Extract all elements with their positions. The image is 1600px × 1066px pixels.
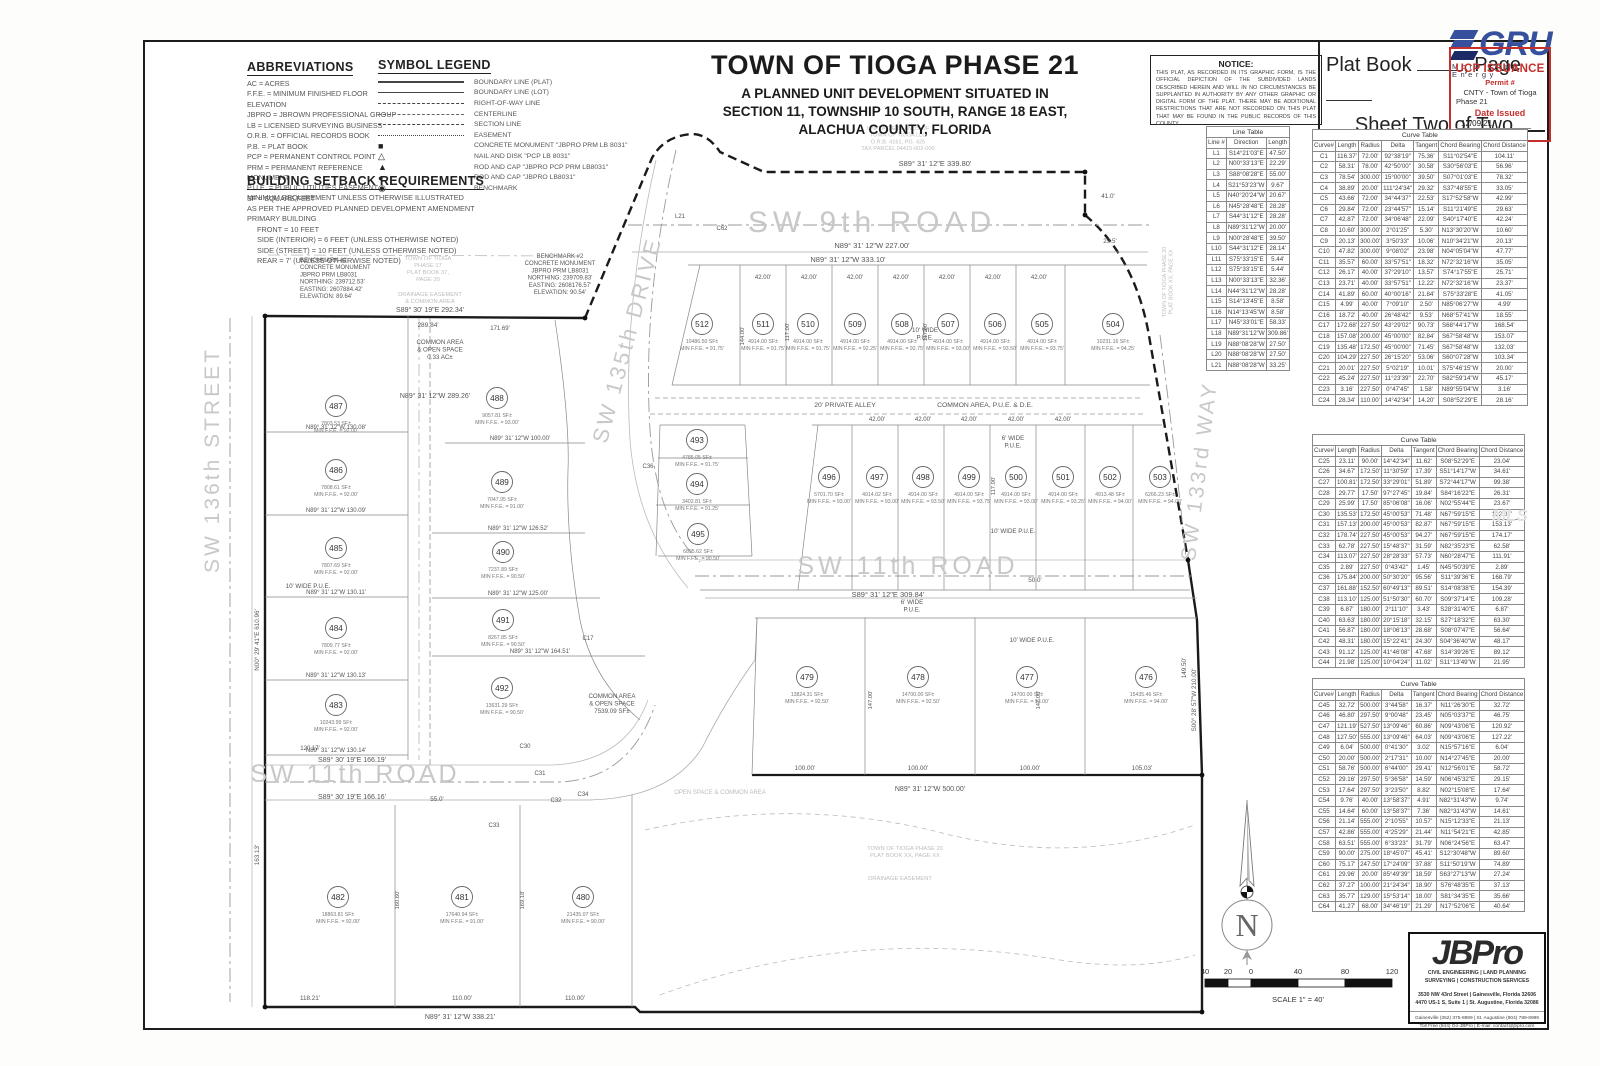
- curve-table-3: Curve TableCurve#LengthRadiusDeltaTangen…: [1312, 678, 1525, 912]
- table-cell: 555.00': [1359, 827, 1382, 838]
- table-cell: 33°29'01": [1382, 477, 1412, 488]
- table-cell: 18°06'13": [1382, 626, 1412, 637]
- table-cell: 16.37': [1411, 700, 1436, 711]
- table-cell: C16: [1313, 310, 1336, 321]
- lot-min-ffe: MIN F.F.E. = 93.00': [855, 499, 899, 505]
- legend-symbol-triangle-open: △: [378, 151, 468, 162]
- map-annotation: S89° 31' 12"E 339.80': [899, 159, 972, 168]
- table-cell: C4: [1313, 183, 1336, 194]
- table-row: C27100.81'172.50'33°29'01"51.89'S72°44'1…: [1313, 477, 1525, 488]
- lot-number: 482: [331, 893, 345, 902]
- table-cell: C33: [1313, 541, 1336, 552]
- lot-area: 21435.07 SF±: [567, 912, 600, 918]
- table-cell: S82°59'14"W: [1439, 374, 1482, 385]
- lot-number: 478: [911, 673, 925, 682]
- table-cell: 45°00'53": [1382, 509, 1412, 520]
- table-cell: 14.64': [1335, 806, 1358, 817]
- table-row: C2428.34'110.00'14°42'34"14.20'S08°52'29…: [1313, 395, 1528, 406]
- table-cell: 37.88': [1411, 859, 1436, 870]
- legend-item: BOUNDARY LINE (LOT): [378, 88, 628, 99]
- table-cell: 15.14': [1414, 204, 1439, 215]
- legend-label: ROD AND CAP "JBPRO PCP PRM LB8031": [474, 164, 608, 171]
- table-cell: S14°21'03"E: [1226, 148, 1266, 159]
- table-cell: 51.89': [1411, 477, 1436, 488]
- table-row: L19N88°08'28"W27.50': [1207, 339, 1290, 350]
- table-cell: C20: [1313, 352, 1336, 363]
- table-cell: C7: [1313, 215, 1336, 226]
- map-annotation: 100.00': [908, 765, 928, 772]
- divider-vertical: [1318, 40, 1320, 130]
- map-annotation: 42.00': [801, 275, 817, 281]
- table-cell: 2.89': [1335, 562, 1358, 573]
- map-annotation: C32: [550, 798, 562, 804]
- lot-area: 4913.48 SF±: [1095, 492, 1125, 498]
- table-header: Length: [1335, 141, 1358, 152]
- table-cell: 180.00': [1359, 636, 1382, 647]
- lot-485: 4857807.69 SF±MIN F.F.E. = 92.00': [314, 538, 358, 577]
- table-cell: 135.48': [1335, 342, 1358, 353]
- legend-item: ▲ROD AND CAP "JBPRO PCP PRM LB8031": [378, 162, 628, 173]
- map-annotation: OPEN SPACE & COMMON AREA: [674, 790, 766, 796]
- table-cell: 97°27'45": [1382, 488, 1412, 499]
- table-cell: S08°52'29"E: [1436, 456, 1479, 467]
- map-annotation: N89° 31' 12"W 164.51': [510, 649, 570, 655]
- table-cell: L8: [1207, 222, 1227, 233]
- table-cell: 40.00': [1359, 795, 1382, 806]
- table-cell: 0°41'30": [1382, 742, 1412, 753]
- lot-area: 4914.00 SF±: [980, 339, 1010, 345]
- table-cell: 48.31': [1335, 636, 1358, 647]
- table-cell: 72.00': [1359, 204, 1382, 215]
- lot-490: 4907237.89 SF±MIN F.F.E. = 90.50': [481, 542, 525, 581]
- lot-number: 485: [329, 544, 343, 553]
- lot-area: 15435.46 SF±: [1130, 692, 1163, 698]
- lot-486: 4867808.61 SF±MIN F.F.E. = 92.00': [314, 460, 358, 499]
- monument-marker: [1200, 773, 1205, 778]
- table-cell: 71.45': [1414, 342, 1439, 353]
- table-cell: C59: [1313, 848, 1336, 859]
- table-row: L2N00°33'13"E22.29': [1207, 159, 1290, 170]
- table-cell: 8.58': [1266, 296, 1289, 307]
- lot-min-ffe: MIN F.F.E. = 91.00': [480, 504, 524, 510]
- lot-number: 484: [329, 624, 343, 633]
- plat-sheet: SW 9th ROADN89° 31' 12"W 227.00'S89° 31'…: [0, 0, 1600, 1066]
- table-cell: S67°58'48"W: [1439, 342, 1482, 353]
- legend-symbol-line-section: [378, 124, 468, 125]
- table-cell: N04°05'04"W: [1439, 246, 1482, 257]
- map-annotation: 42.00': [1055, 417, 1071, 423]
- table-cell: 17°24'09": [1382, 859, 1412, 870]
- table-row: C2523.11'90.00'14°42'34"11.62'S08°52'29"…: [1313, 456, 1525, 467]
- table-cell: 63.51': [1335, 838, 1358, 849]
- table-cell: 12.22': [1414, 278, 1439, 289]
- map-annotation: 10' WIDE P.U.E.: [1010, 637, 1055, 644]
- table-cell: S37°48'55"E: [1439, 183, 1482, 194]
- legend-symbol-triangle-filled: ▲: [378, 162, 468, 172]
- lot-487: 4877803.53 SF±MIN F.F.E. = 92.00': [314, 396, 358, 435]
- table-cell: 72.00': [1359, 193, 1382, 204]
- table-row: L20N88°08'28"W27.50': [1207, 349, 1290, 360]
- table-cell: 5.44': [1266, 254, 1289, 265]
- plat-book-label: Plat Book: [1326, 54, 1412, 76]
- table-cell: 100.81': [1335, 477, 1358, 488]
- table-cell: L7: [1207, 212, 1227, 223]
- table-cell: S11°50'19"W: [1436, 859, 1479, 870]
- table-row: L5N40°20'24"W20.67': [1207, 190, 1290, 201]
- map-annotation: N89° 31' 12"W 500.00': [895, 785, 965, 793]
- table-cell: N06°24'56"E: [1436, 838, 1479, 849]
- lot-number: 498: [916, 473, 930, 482]
- table-cell: 127.22': [1479, 732, 1525, 743]
- table-cell: 555.00': [1359, 732, 1382, 743]
- stamp-title: UCP ISSUANCE: [1451, 63, 1549, 75]
- table-row: C1441.89'60.00'40°00'16"21.84'S75°33'28"…: [1313, 289, 1528, 300]
- table-cell: 168.79': [1479, 573, 1525, 584]
- lot-number: 499: [962, 473, 976, 482]
- lot-min-ffe: MIN F.F.E. = 91.75': [675, 462, 719, 468]
- legend-label: EASEMENT: [474, 132, 511, 139]
- table-cell: 10.01': [1414, 363, 1439, 374]
- table-cell: 1.58': [1414, 384, 1439, 395]
- table-cell: 45°00'53": [1382, 520, 1412, 531]
- table-cell: S04°36'40"W: [1436, 636, 1479, 647]
- table-cell: C9: [1313, 236, 1336, 247]
- table-cell: N00°33'13"E: [1226, 159, 1266, 170]
- table-cell: 172.50': [1359, 477, 1382, 488]
- table-cell: 129.00': [1359, 891, 1382, 902]
- table-cell: 38.89': [1335, 183, 1358, 194]
- table-cell: N67°59'15"E: [1436, 509, 1479, 520]
- lot-number: 490: [496, 548, 510, 557]
- lot-481: 48117640.94 SF±MIN F.F.E. = 91.00': [440, 887, 484, 926]
- table-cell: 25.99': [1335, 498, 1358, 509]
- table-cell: 157.13': [1335, 520, 1358, 531]
- table-cell: 10.00': [1411, 753, 1436, 764]
- jbpro-address-2: 4470 US-1 S, Suite 1 | St. Augustine, Fl…: [1410, 999, 1544, 1007]
- lot-497: 4974914.02 SF±MIN F.F.E. = 93.00': [855, 467, 899, 506]
- table-cell: C61: [1313, 870, 1336, 881]
- line-table: Line TableLine #DirectionLengthL1S14°21'…: [1206, 126, 1290, 371]
- table-row: C4248.31'180.00'15°22'41"24.30'S04°36'40…: [1313, 636, 1525, 647]
- table-cell: 500.00': [1359, 700, 1382, 711]
- jbpro-logo: JBPro: [1410, 936, 1544, 970]
- table-cell: C53: [1313, 785, 1336, 796]
- table-cell: C18: [1313, 331, 1336, 342]
- table-cell: 227.50': [1359, 363, 1382, 374]
- table-cell: 11.02': [1411, 657, 1436, 668]
- table-cell: 35.77': [1335, 891, 1358, 902]
- table-cell: 20.00': [1359, 183, 1382, 194]
- lot-number: 489: [495, 478, 509, 487]
- legend-label: CONCRETE MONUMENT "JBPRO PRM LB 8031": [474, 142, 628, 149]
- lot-489: 4897047.95 SF±MIN F.F.E. = 91.00': [480, 472, 524, 511]
- table-cell: N00°33'13"E: [1226, 275, 1266, 286]
- table-cell: S30°56'03"E: [1439, 162, 1482, 173]
- table-cell: 154.39': [1479, 583, 1525, 594]
- abbreviation-item: O.R.B. = OFFICIAL RECORDS BOOK: [247, 131, 397, 141]
- map-annotation: 105.03': [1132, 765, 1152, 772]
- lot-min-ffe: MIN F.F.E. = 92.50': [896, 699, 940, 705]
- table-cell: C41: [1313, 626, 1336, 637]
- lot-number: 493: [690, 436, 704, 445]
- table-cell: 6°33'23": [1382, 838, 1412, 849]
- legend-item: CENTERLINE: [378, 109, 628, 120]
- table-cell: C43: [1313, 647, 1336, 658]
- table-cell: 100.00': [1359, 880, 1382, 891]
- map-annotation: 117.00': [991, 477, 997, 495]
- lot-number: 501: [1056, 473, 1070, 482]
- table-row: C6237.27'100.00'21°24'34"18.90'S76°48'35…: [1313, 880, 1525, 891]
- lot-479: 47913824.31 SF±MIN F.F.E. = 92.50': [785, 667, 829, 706]
- map-annotation: 10' WIDE P.U.E.: [286, 583, 331, 590]
- table-cell: L14: [1207, 286, 1227, 297]
- lot-min-ffe: MIN F.F.E. = 92.00': [314, 727, 358, 733]
- table-cell: N67°59'15"E: [1436, 530, 1479, 541]
- table-cell: 60.00': [1359, 806, 1382, 817]
- table-row: C2634.67'172.50'11°30'59"17.39'S51°14'17…: [1313, 467, 1525, 478]
- table-cell: 21.98': [1335, 657, 1358, 668]
- monument-marker: [1200, 1010, 1205, 1015]
- table-cell: S40°17'40"E: [1439, 215, 1482, 226]
- table-cell: C13: [1313, 278, 1336, 289]
- table-cell: 111.91': [1479, 551, 1525, 562]
- table-cell: 60°49'13": [1382, 583, 1412, 594]
- setback-title: BUILDING SETBACK REQUIREMENTS: [247, 174, 484, 190]
- table-cell: 6.87': [1335, 604, 1358, 615]
- table-cell: C27: [1313, 477, 1336, 488]
- table-cell: 31.79': [1411, 838, 1436, 849]
- table-row: L4S21°53'23"W9.67': [1207, 180, 1290, 191]
- lot-min-ffe: MIN F.F.E. = 90.50': [480, 710, 524, 716]
- lot-506: 5064914.00 SF±MIN F.F.E. = 93.50': [973, 314, 1017, 353]
- table-cell: 10.60': [1335, 225, 1358, 236]
- table-cell: S14°08'38"E: [1436, 583, 1479, 594]
- map-annotation: S00° 28' 57"W 210.00': [1190, 669, 1198, 732]
- table-row: C2245.24'227.50'11°23'39"22.70'S82°59'14…: [1313, 374, 1528, 385]
- table-cell: 34.61': [1479, 467, 1525, 478]
- table-row: L9N00°28'48"E39.50': [1207, 233, 1290, 244]
- scale-label: 40: [1201, 967, 1209, 976]
- table-row: C4156.87'180.00'18°06'13"28.68'S08°07'47…: [1313, 626, 1525, 637]
- table-header: Chord Distance: [1482, 141, 1528, 152]
- table-cell: 23.37': [1482, 278, 1528, 289]
- table-cell: 40.00': [1359, 310, 1382, 321]
- table-cell: 21°24'34": [1382, 880, 1412, 891]
- map-annotation: N89° 31' 12"W 333.10': [810, 255, 886, 264]
- map-annotation: C34: [577, 792, 589, 798]
- table-cell: 120.92': [1479, 721, 1525, 732]
- sheet-subtitle-1: A PLANNED UNIT DEVELOPMENT SITUATED IN: [655, 85, 1135, 103]
- table-cell: 29.84': [1335, 204, 1358, 215]
- table-cell: 25.71': [1482, 268, 1528, 279]
- table-cell: 18.55': [1482, 310, 1528, 321]
- table-cell: 48.17': [1479, 636, 1525, 647]
- map-annotation: 6' WIDEP.U.E.: [901, 599, 924, 613]
- table-cell: L16: [1207, 307, 1227, 318]
- map-annotation: 120.17': [300, 746, 320, 752]
- map-annotation: N00° 29' 41"E 610.96': [253, 609, 261, 670]
- table-cell: 6°44'00": [1382, 764, 1412, 775]
- table-row: C396.87'180.00'2°11'10"3.43'S28°31'40"E6…: [1313, 604, 1525, 615]
- table-cell: C6: [1313, 204, 1336, 215]
- table-cell: 174.17': [1479, 530, 1525, 541]
- table-cell: S68°44'17"W: [1439, 321, 1482, 332]
- table-cell: 17.39': [1411, 467, 1436, 478]
- table-cell: L18: [1207, 328, 1227, 339]
- abbreviation-item: LB = LICENSED SURVEYING BUSINESS: [247, 121, 397, 131]
- map-annotation: 42.00': [1008, 417, 1024, 423]
- lot-number: 479: [800, 673, 814, 682]
- map-annotation: 29.5': [1103, 238, 1116, 245]
- table-cell: 20.00': [1335, 753, 1358, 764]
- table-cell: 4.99': [1482, 299, 1528, 310]
- lot-area: 4914.00 SF±: [748, 339, 778, 345]
- lot-min-ffe: MIN F.F.E. = 93.50': [901, 499, 945, 505]
- table-cell: 22.53': [1414, 193, 1439, 204]
- table-row: L17N45°33'01"E58.33': [1207, 318, 1290, 329]
- lot-area: 6266.23 SF±: [1145, 492, 1175, 498]
- abbreviations-title: ABBREVIATIONS: [247, 60, 353, 76]
- lot-476: 47615435.46 SF±MIN F.F.E. = 94.00': [1124, 667, 1168, 706]
- jbpro-phone-1: Gainesville (352) 375-8999 | St. Augusti…: [1410, 1015, 1544, 1023]
- table-cell: 37°29'10": [1382, 268, 1414, 279]
- map-annotation: COMMON AREA& OPEN SPACE7539.09 SF±: [588, 693, 636, 715]
- table-row: L8N89°31'12"W20.00': [1207, 222, 1290, 233]
- legend-symbol-square: ■: [378, 141, 468, 151]
- table-cell: 26.17': [1335, 268, 1358, 279]
- table-cell: 8.82': [1411, 785, 1436, 796]
- lot-number: 483: [329, 701, 343, 710]
- table-header: Chord Bearing: [1436, 690, 1479, 701]
- table-cell: 275.00': [1359, 848, 1382, 859]
- map-annotation: N89° 31' 12"W 227.00': [834, 241, 910, 250]
- table-cell: 41.27': [1335, 901, 1358, 912]
- lot-min-ffe: MIN F.F.E. = 94.00': [1124, 699, 1168, 705]
- scale-bar: 402004080120SCALE 1" = 40': [1201, 967, 1398, 1004]
- table-cell: 42.86': [1335, 827, 1358, 838]
- table-cell: 26.31': [1479, 488, 1525, 499]
- lot-area: 7809.77 SF±: [321, 643, 351, 649]
- table-cell: 78.32': [1482, 172, 1528, 183]
- north-letter: N: [1235, 907, 1258, 943]
- table-cell: 37.13': [1479, 880, 1525, 891]
- table-cell: 172.50': [1359, 342, 1382, 353]
- lot-min-ffe: MIN F.F.E. = 93.00': [807, 499, 851, 505]
- legend-label: CENTERLINE: [474, 111, 517, 118]
- table-cell: C64: [1313, 901, 1336, 912]
- table-cell: S11°13'49"W: [1436, 657, 1479, 668]
- lot-number: 495: [691, 530, 705, 539]
- map-annotation: N89° 31' 12"W 126.52': [488, 526, 548, 532]
- table-cell: 300.00': [1359, 246, 1382, 257]
- table-row: C34113.07'227.50'28°28'33"57.73'N60°28'4…: [1313, 551, 1525, 562]
- table-header: Tangent: [1414, 141, 1439, 152]
- table-row: C47121.19'527.50'13°09'46"60.86'N09°43'0…: [1313, 721, 1525, 732]
- table-cell: 60.00': [1359, 257, 1382, 268]
- setback-block: BUILDING SETBACK REQUIREMENTS MINIMUM RE…: [247, 172, 527, 267]
- table-row: C4391.12'125.00'41°46'08"47.68'S14°39'26…: [1313, 647, 1525, 658]
- table-cell: N89°31'12"W: [1226, 222, 1266, 233]
- table-row: L7S44°31'12"E28.28': [1207, 212, 1290, 223]
- jbpro-address-1: 3530 NW 43rd Street | Gainesville, Flori…: [1410, 991, 1544, 999]
- table-cell: 152.50': [1359, 583, 1382, 594]
- table-cell: N40°20'24"W: [1226, 190, 1266, 201]
- scale-caption: SCALE 1" = 40': [1272, 995, 1324, 1004]
- table-cell: 300.00': [1359, 236, 1382, 247]
- legend-item: △NAIL AND DISK "PCP LB 8031": [378, 151, 628, 162]
- table-cell: 227.50': [1359, 530, 1382, 541]
- lot-min-ffe: MIN F.F.E. = 93.00': [926, 346, 970, 352]
- table-cell: C39: [1313, 604, 1336, 615]
- lot-498: 4984914.00 SF±MIN F.F.E. = 93.50': [901, 467, 945, 506]
- table-cell: C38: [1313, 594, 1336, 605]
- table-row: C233.16'227.50'0°47'45"1.58'N89°55'04"W3…: [1313, 384, 1528, 395]
- table-cell: 0°47'45": [1382, 384, 1414, 395]
- table-row: C6335.77'129.00'15°53'14"18.00'S81°34'35…: [1313, 891, 1525, 902]
- table-cell: 15°53'14": [1382, 891, 1412, 902]
- table-cell: 18.72': [1335, 310, 1358, 321]
- table-cell: 82.84': [1414, 331, 1439, 342]
- legend-label: SECTION LINE: [474, 121, 521, 128]
- stamp-permit-label: Permit #: [1451, 78, 1549, 87]
- table-cell: 47.77': [1482, 246, 1528, 257]
- lot-area: 4914.00 SF±: [908, 492, 938, 498]
- lot-number: 509: [848, 320, 862, 329]
- table-cell: L15: [1207, 296, 1227, 307]
- table-cell: 41.89': [1335, 289, 1358, 300]
- lot-number: 508: [895, 320, 909, 329]
- table-row: C549.76'40.00'13°58'37"4.91'N82°31'43"W9…: [1313, 795, 1525, 806]
- table-cell: S74°17'55"E: [1439, 268, 1482, 279]
- table-cell: 24.30': [1411, 636, 1436, 647]
- table-cell: 37.27': [1335, 880, 1358, 891]
- table-cell: 45°00'53": [1382, 530, 1412, 541]
- table-cell: 63.47': [1479, 838, 1525, 849]
- table-cell: 28.14': [1266, 243, 1289, 254]
- table-cell: 23.71': [1335, 278, 1358, 289]
- map-annotation: 110.00': [565, 995, 585, 1002]
- table-cell: 58.31': [1335, 162, 1358, 173]
- lot-504: 50410231.16 SF±MIN F.F.E. = 94.25': [1091, 314, 1135, 353]
- table-cell: 20.01': [1335, 363, 1358, 374]
- scale-bar-segment: [1251, 979, 1298, 987]
- table-cell: C23: [1313, 384, 1336, 395]
- table-cell: 90.00': [1335, 848, 1358, 859]
- lot-area: 18863.81 SF±: [322, 912, 355, 918]
- scale-bar-segment: [1228, 979, 1251, 987]
- table-cell: 40.64': [1479, 901, 1525, 912]
- table-cell: 227.50': [1359, 352, 1382, 363]
- table-cell: N10°34'21"W: [1439, 236, 1482, 247]
- table-row: C6129.96'20.00'85°49'39"18.59'S63°27'13"…: [1313, 870, 1525, 881]
- table-cell: 300.00': [1359, 172, 1382, 183]
- table-cell: L13: [1207, 275, 1227, 286]
- table-cell: 91.12': [1335, 647, 1358, 658]
- stamp-date-label: Date Issued: [1451, 108, 1549, 118]
- table-title: Line Table: [1207, 127, 1290, 138]
- lot-number: 481: [455, 893, 469, 902]
- lot-area: 13824.31 SF±: [791, 692, 824, 698]
- map-annotation: 42.00': [893, 275, 909, 281]
- table-cell: L5: [1207, 190, 1227, 201]
- table-cell: C31: [1313, 520, 1336, 531]
- table-cell: S08°52'29"E: [1439, 395, 1482, 406]
- lot-484: 4847809.77 SF±MIN F.F.E. = 92.00': [314, 618, 358, 657]
- table-cell: 32.36': [1266, 275, 1289, 286]
- map-line: [650, 398, 1145, 414]
- table-cell: 153.07': [1482, 331, 1528, 342]
- table-row: C36175.84'200.00'50°30'20"95.56'S11°39'3…: [1313, 573, 1525, 584]
